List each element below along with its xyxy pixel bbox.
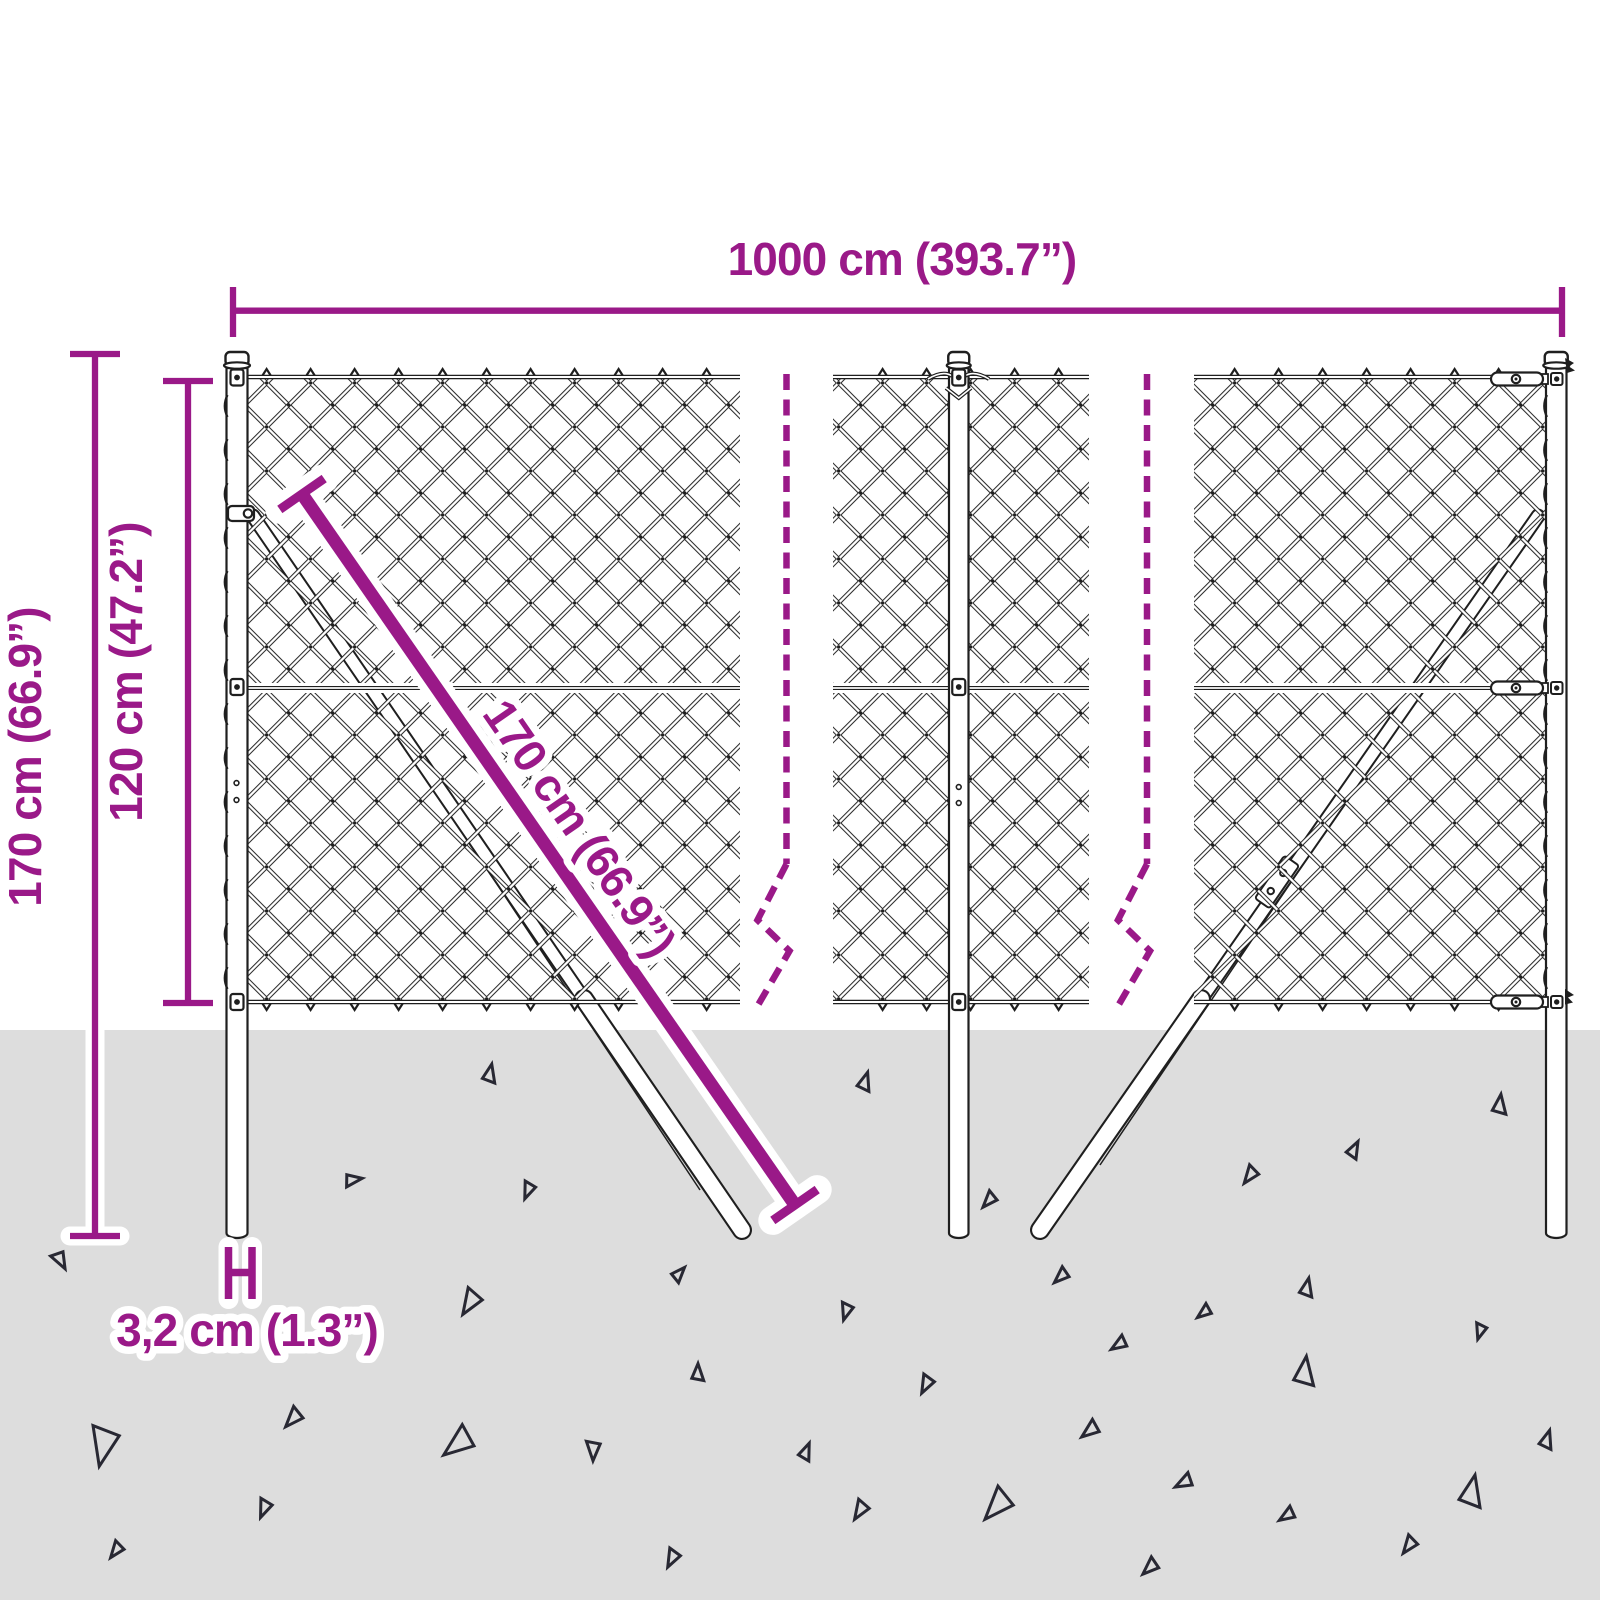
svg-text:170 cm (66.9”): 170 cm (66.9”) — [0, 607, 51, 906]
svg-text:3,2 cm (1.3”): 3,2 cm (1.3”) — [116, 1304, 378, 1356]
svg-text:120 cm (47.2”): 120 cm (47.2”) — [100, 522, 152, 821]
svg-text:1000 cm (393.7”): 1000 cm (393.7”) — [728, 233, 1077, 285]
